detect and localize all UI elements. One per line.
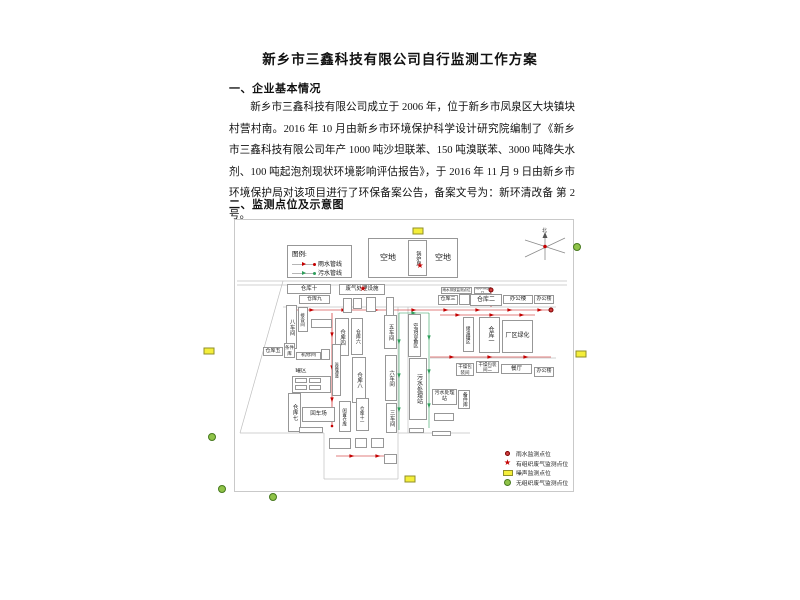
pipeline-legend-item: 污水管线 [292,268,351,277]
building-bangonglou-3: 办公楼 [534,367,554,377]
compass-north-label: 北 [542,227,547,234]
building-cangku-9: 仓库九 [299,295,330,304]
monitoring-legend-item: 噪声监测点位 [502,469,568,476]
noise-monitoring-point [405,476,416,483]
star-marker-icon: ★ [502,459,513,467]
building-box-d [366,297,376,312]
building-box-c [353,298,362,309]
noise-monitoring-point [576,351,587,358]
building-cangku-11: 仓库十一 [356,398,369,431]
building-wushui-zhan-v: 污水处理站 [409,358,427,420]
monitoring-points-legend: 雨水监测点位★有组织废气监测点位噪声监测点位无组织废气监测点位 [502,450,568,486]
building-jixiujian: 机修间 [296,352,321,360]
noise-monitoring-point [204,348,215,355]
building-liuchejian: 六车间 [385,355,397,401]
building-box-k [432,431,451,436]
building-chuyou-guanqu: 储油罐区 [463,317,474,352]
building-cangku-2: 仓库二 [470,294,502,306]
building-cangku-8: 仓库八 [352,357,366,403]
circle-marker-icon [502,479,513,486]
pipeline-legend-item: 雨水管线 [292,259,351,268]
fugitive-gas-monitoring-point [573,243,581,251]
building-guanqu-t3 [309,378,321,383]
rainwater-monitoring-point [549,308,554,313]
pipeline-legend: 图例: 雨水管线污水管线 [287,245,352,278]
building-beijianku: 备件库 [458,390,470,409]
building-changqu-lvhua: 厂区绿化 [502,320,533,353]
building-outfall-label-1: 雨水排放监测点位 [441,287,472,294]
monitoring-legend-item: ★有组织废气监测点位 [502,460,568,467]
fugitive-gas-monitoring-point [269,493,277,501]
building-tiaojianku: 条件库 [284,343,295,358]
monitoring-legend-item: 无组织废气监测点位 [502,479,568,486]
noise-monitoring-point [413,228,424,235]
building-box-b [343,298,352,313]
building-box-g [321,349,330,360]
stack-gas-monitoring-point: ★ [416,262,423,270]
section1-heading: 一、企业基本情况 [229,80,321,96]
monitoring-legend-label: 无组织废气监测点位 [516,478,568,487]
building-yunshu-tongdao: 运输通道 [332,344,341,396]
building-guanqu-t1 [295,378,307,383]
building-jiehejian: 接合间 [298,307,308,332]
rain-pipe-line-icon [292,261,316,267]
building-cangku-10: 仓库十 [287,284,331,294]
pipeline-legend-label: 污水管线 [318,268,342,277]
pipeline-legend-rows: 雨水管线污水管线 [292,259,351,277]
dot-marker-icon [502,451,513,456]
pipeline-legend-label: 雨水管线 [318,259,342,268]
building-guanqu-label: 罐区 [292,368,310,375]
building-cangku-3: 仓库三 [438,295,458,305]
stack-gas-monitoring-point: ★ [359,285,366,293]
section2-heading: 二、监测点位及示意图 [229,196,344,212]
building-bangonglou-2: 办公楼 [534,295,554,304]
building-cangku-6: 仓库六 [351,318,363,355]
document-page: 新乡市三鑫科技有限公司自行监测工作方案 一、企业基本情况 新乡市三鑫科技有限公司… [0,0,800,600]
building-huichechang: 回车场 [302,407,335,422]
rect-marker-icon [502,470,513,476]
building-guanqu-t2 [295,385,307,390]
building-wuchejian: 五车间 [384,315,397,349]
building-guanqu-t4 [309,385,321,390]
building-guolufang: 锅炉房 [408,240,427,276]
building-cangku-5: 仓库五 [263,347,283,356]
fugitive-gas-monitoring-point [218,485,226,493]
building-box-j [409,428,424,433]
building-wushui-zhan-box: 污水处理站 [432,389,457,405]
building-box-m [355,438,367,448]
monitoring-legend-item: 雨水监测点位 [502,450,568,457]
sewage-pipe-line-icon [292,270,316,276]
building-box-a [311,319,332,328]
building-box-l [329,438,351,449]
building-box-h [299,427,323,433]
page-title: 新乡市三鑫科技有限公司自行监测工作方案 [0,48,800,68]
building-bangonglou-1: 办公楼 [503,295,533,304]
building-ganzao-1: 干燥包装间 [456,363,474,376]
building-box-i [434,413,454,421]
monitoring-legend-label: 有组织废气监测点位 [516,459,568,468]
building-kongdi-left: 空地 [371,251,405,264]
building-box-f [459,294,470,305]
building-ganzao-2: 干燥包装间二 [476,361,499,373]
monitoring-legend-label: 噪声监测点位 [516,468,551,477]
compass-icon: 北 [522,231,568,263]
building-box-o [384,454,397,464]
building-kongtiao-shebei: 空调设备区 [408,314,421,357]
building-sanchejian: 三车间 [386,403,397,433]
building-box-n [371,438,384,448]
monitoring-legend-label: 雨水监测点位 [516,449,551,458]
building-canting: 餐厅 [501,364,532,374]
building-kongdi-right: 空地 [429,251,457,264]
rainwater-monitoring-point [489,288,494,293]
building-cangku-1: 仓库一 [479,317,500,353]
building-box-e [386,297,394,316]
pipeline-legend-title: 图例: [292,248,351,258]
building-xianzhi-cangku: 闲置仓库 [339,401,351,432]
fugitive-gas-monitoring-point [208,433,216,441]
